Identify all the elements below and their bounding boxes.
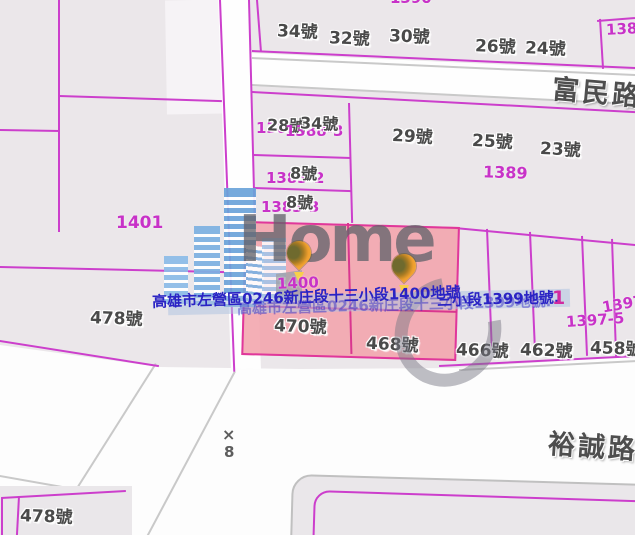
lot-number-label: 1401 [116, 214, 163, 233]
house-number-label: 462號 [520, 341, 573, 362]
parcel-light-patch [165, 0, 222, 114]
marker-digit-label: 1 [552, 289, 565, 308]
house-number-label: 470號 [274, 317, 327, 338]
house-number-label: 34號 [277, 22, 318, 42]
house-number-label: 34號 [300, 114, 339, 133]
lot-number-label: 138 [606, 20, 635, 38]
cadastral-line [0, 129, 60, 132]
lot-number-label: 1390 [390, 0, 432, 7]
cadastral-line [581, 236, 588, 356]
house-number-label: 478號 [90, 309, 143, 330]
house-number-label: 26號 [475, 37, 516, 57]
cadastral-line [254, 154, 351, 159]
survey-cross-symbol: × [222, 427, 235, 443]
cadastral-line [455, 227, 635, 246]
survey-eight-symbol: 8 [224, 445, 234, 460]
house-number-label: 32號 [329, 29, 370, 49]
house-number-label: 24號 [525, 39, 566, 59]
house-number-label: 29號 [392, 127, 434, 148]
map-canvas[interactable]: 1390 138 1401 1389 1397 1397-5 1383 28號 … [0, 0, 635, 535]
road-name-fumin: 富民路 [551, 76, 635, 111]
house-number-label: 25號 [472, 132, 514, 153]
cadastral-line [58, 0, 60, 232]
house-number-label: 458號 [590, 339, 635, 360]
house-number-label: 23號 [540, 140, 582, 161]
house-number-label: 30號 [389, 27, 430, 47]
road-name-yucheng: 裕誠路 [547, 431, 635, 464]
cadastral-line [1, 498, 3, 535]
lot-number-label: 1389 [483, 163, 528, 182]
cadastral-line [256, 0, 262, 52]
lot-number-label: 1397-5 [565, 310, 624, 331]
house-number-label: 478號 [20, 507, 73, 528]
cadastral-line [599, 19, 604, 69]
address-line2-tail: 三小段1399地號. [437, 289, 560, 310]
